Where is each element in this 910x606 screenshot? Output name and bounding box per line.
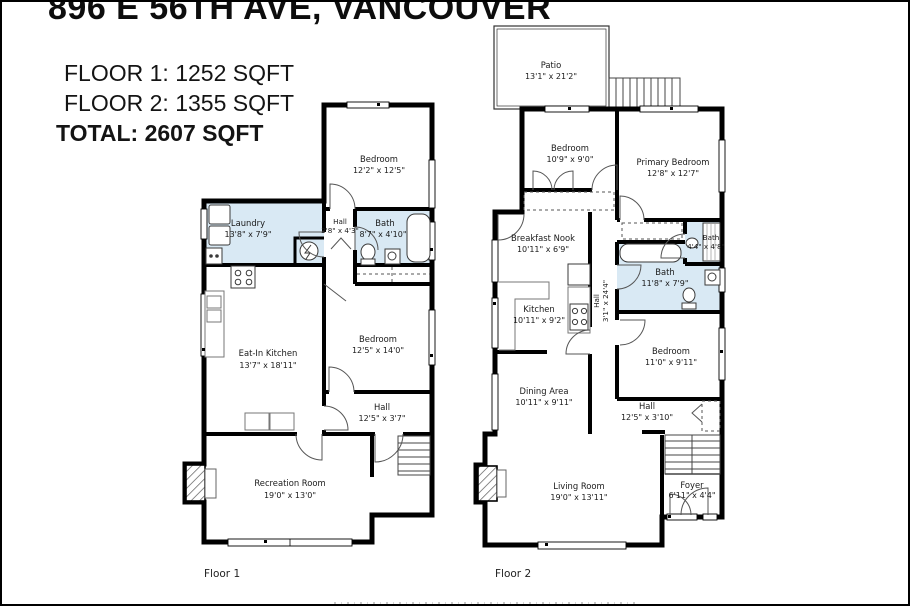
svg-text:3'8" x 4'3": 3'8" x 4'3": [321, 226, 359, 235]
svg-text:Bath: Bath: [375, 218, 394, 228]
svg-text:Hall: Hall: [639, 401, 655, 411]
svg-text:10'11" x 6'9": 10'11" x 6'9": [517, 245, 569, 254]
room-label-f1-bedroom2: Bedroom 12'5" x 14'0": [352, 334, 404, 355]
svg-text:3'1" x 24'4": 3'1" x 24'4": [601, 280, 610, 322]
floor1-stairs: [398, 436, 430, 475]
svg-text:13'1" x 21'2": 13'1" x 21'2": [525, 72, 577, 81]
svg-text:Laundry: Laundry: [231, 218, 265, 228]
footer-text-fragment: [334, 602, 640, 606]
room-label-f2-patio: Patio 13'1" x 21'2": [525, 60, 577, 81]
bathtub-icon: [620, 244, 681, 262]
svg-text:Bath: Bath: [655, 267, 674, 277]
room-label-f2-bedroom2: Bedroom 11'0" x 9'11": [645, 346, 697, 367]
floor2-fireplace: [478, 466, 506, 501]
svg-text:4'4" x 4'8": 4'4" x 4'8": [687, 242, 725, 251]
floor1-plan: Bedroom 12'2" x 12'5" Laundry 13'8" x 7'…: [185, 102, 435, 580]
svg-text:Foyer: Foyer: [680, 480, 704, 490]
floor1-closet-doors: [357, 267, 430, 282]
svg-text:13'7" x 18'11": 13'7" x 18'11": [239, 361, 296, 370]
room-label-f1-bedroom1: Bedroom 12'2" x 12'5": [353, 154, 405, 175]
svg-text:19'0" x 13'0": 19'0" x 13'0": [264, 491, 316, 500]
room-label-f2-kitchen: Kitchen 10'11" x 9'2": [513, 304, 565, 325]
svg-text:Bedroom: Bedroom: [359, 334, 397, 344]
svg-text:19'0" x 13'11": 19'0" x 13'11": [550, 493, 607, 502]
room-label-f2-nook: Breakfast Nook 10'11" x 6'9": [511, 233, 575, 254]
svg-text:Eat-In Kitchen: Eat-In Kitchen: [239, 348, 298, 358]
room-label-f1-recreation: Recreation Room 19'0" x 13'0": [254, 478, 325, 500]
stove-icon: [570, 304, 588, 330]
toilet-icon: [683, 288, 695, 302]
svg-text:Kitchen: Kitchen: [523, 304, 554, 314]
svg-text:12'5" x 14'0": 12'5" x 14'0": [352, 346, 404, 355]
svg-text:10'9" x 9'0": 10'9" x 9'0": [546, 155, 593, 164]
room-label-f1-hall2: Hall 12'5" x 3'7": [358, 402, 405, 423]
room-label-f1-kitchen: Eat-In Kitchen 13'7" x 18'11": [239, 348, 298, 370]
svg-text:Recreation Room: Recreation Room: [254, 478, 325, 488]
floorplan-page: 896 E 56TH AVE, VANCOUVER FLOOR 1: 1252 …: [0, 0, 910, 606]
svg-text:12'2" x 12'5": 12'2" x 12'5": [353, 166, 405, 175]
bathtub-icon: [407, 214, 430, 262]
room-label-f2-primary: Primary Bedroom 12'8" x 12'7": [637, 157, 710, 178]
svg-text:10'11" x 9'11": 10'11" x 9'11": [515, 398, 572, 407]
svg-text:Primary Bedroom: Primary Bedroom: [637, 157, 710, 167]
washer-icon: [209, 205, 230, 224]
svg-text:Living Room: Living Room: [553, 481, 604, 491]
floor2-plan: Patio 13'1" x 21'2" Bedroom 10'9" x 9'0"…: [476, 26, 725, 580]
svg-text:Dining Area: Dining Area: [520, 386, 569, 396]
room-label-f2-hall-v: Hall 3'1" x 24'4": [592, 280, 610, 322]
svg-text:Breakfast Nook: Breakfast Nook: [511, 233, 575, 243]
svg-text:8'7" x 4'10": 8'7" x 4'10": [359, 230, 406, 239]
svg-text:Bedroom: Bedroom: [652, 346, 690, 356]
table-icon: [245, 413, 269, 430]
svg-text:12'8" x 12'7": 12'8" x 12'7": [647, 169, 699, 178]
floor2-label: Floor 2: [495, 568, 531, 580]
svg-text:Hall: Hall: [333, 217, 347, 226]
fridge-icon: [568, 264, 590, 285]
svg-text:Patio: Patio: [541, 60, 562, 70]
svg-text:6'11" x 4'4": 6'11" x 4'4": [668, 491, 715, 500]
svg-text:Bedroom: Bedroom: [551, 143, 589, 153]
floor2-stairs: [665, 435, 720, 474]
svg-text:10'11" x 9'2": 10'11" x 9'2": [513, 316, 565, 325]
room-label-f2-hall-h: Hall 12'5" x 3'10": [621, 401, 673, 422]
room-label-f2-living: Living Room 19'0" x 13'11": [550, 481, 607, 502]
room-label-f2-bedroom1: Bedroom 10'9" x 9'0": [546, 143, 593, 164]
floor1-label: Floor 1: [204, 568, 240, 580]
svg-text:11'8" x 7'9": 11'8" x 7'9": [641, 279, 688, 288]
svg-text:Hall: Hall: [374, 402, 390, 412]
svg-text:13'8" x 7'9": 13'8" x 7'9": [224, 230, 271, 239]
toilet-icon: [361, 244, 375, 260]
svg-text:Bedroom: Bedroom: [360, 154, 398, 164]
svg-text:12'5" x 3'10": 12'5" x 3'10": [621, 413, 673, 422]
svg-text:Bath: Bath: [703, 233, 720, 242]
stove-icon: [231, 266, 255, 288]
svg-text:Hall: Hall: [592, 294, 601, 308]
laundry-sink-icon: [206, 248, 222, 264]
room-label-f2-dining: Dining Area 10'11" x 9'11": [515, 386, 572, 407]
svg-text:11'0" x 9'11": 11'0" x 9'11": [645, 358, 697, 367]
floorplan-drawing: Bedroom 12'2" x 12'5" Laundry 13'8" x 7'…: [2, 2, 910, 606]
floor2-patio-stairs: [609, 78, 680, 109]
svg-text:12'5" x 3'7": 12'5" x 3'7": [358, 414, 405, 423]
floor1-fireplace: [186, 465, 216, 501]
